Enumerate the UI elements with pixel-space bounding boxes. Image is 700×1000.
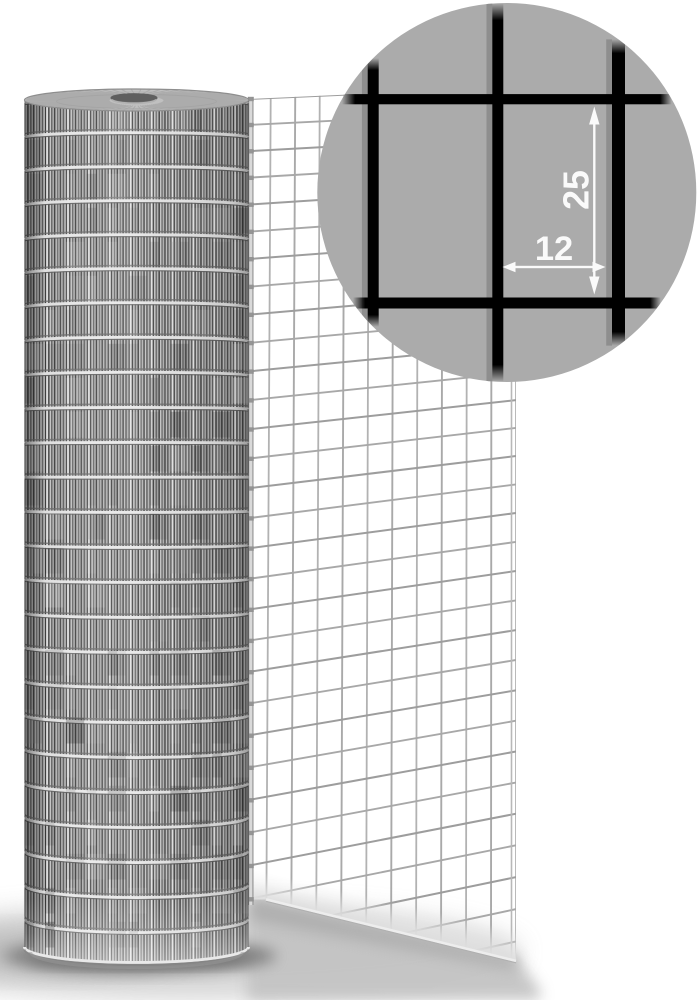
svg-text:25: 25	[557, 170, 597, 210]
svg-text:12: 12	[535, 230, 573, 268]
